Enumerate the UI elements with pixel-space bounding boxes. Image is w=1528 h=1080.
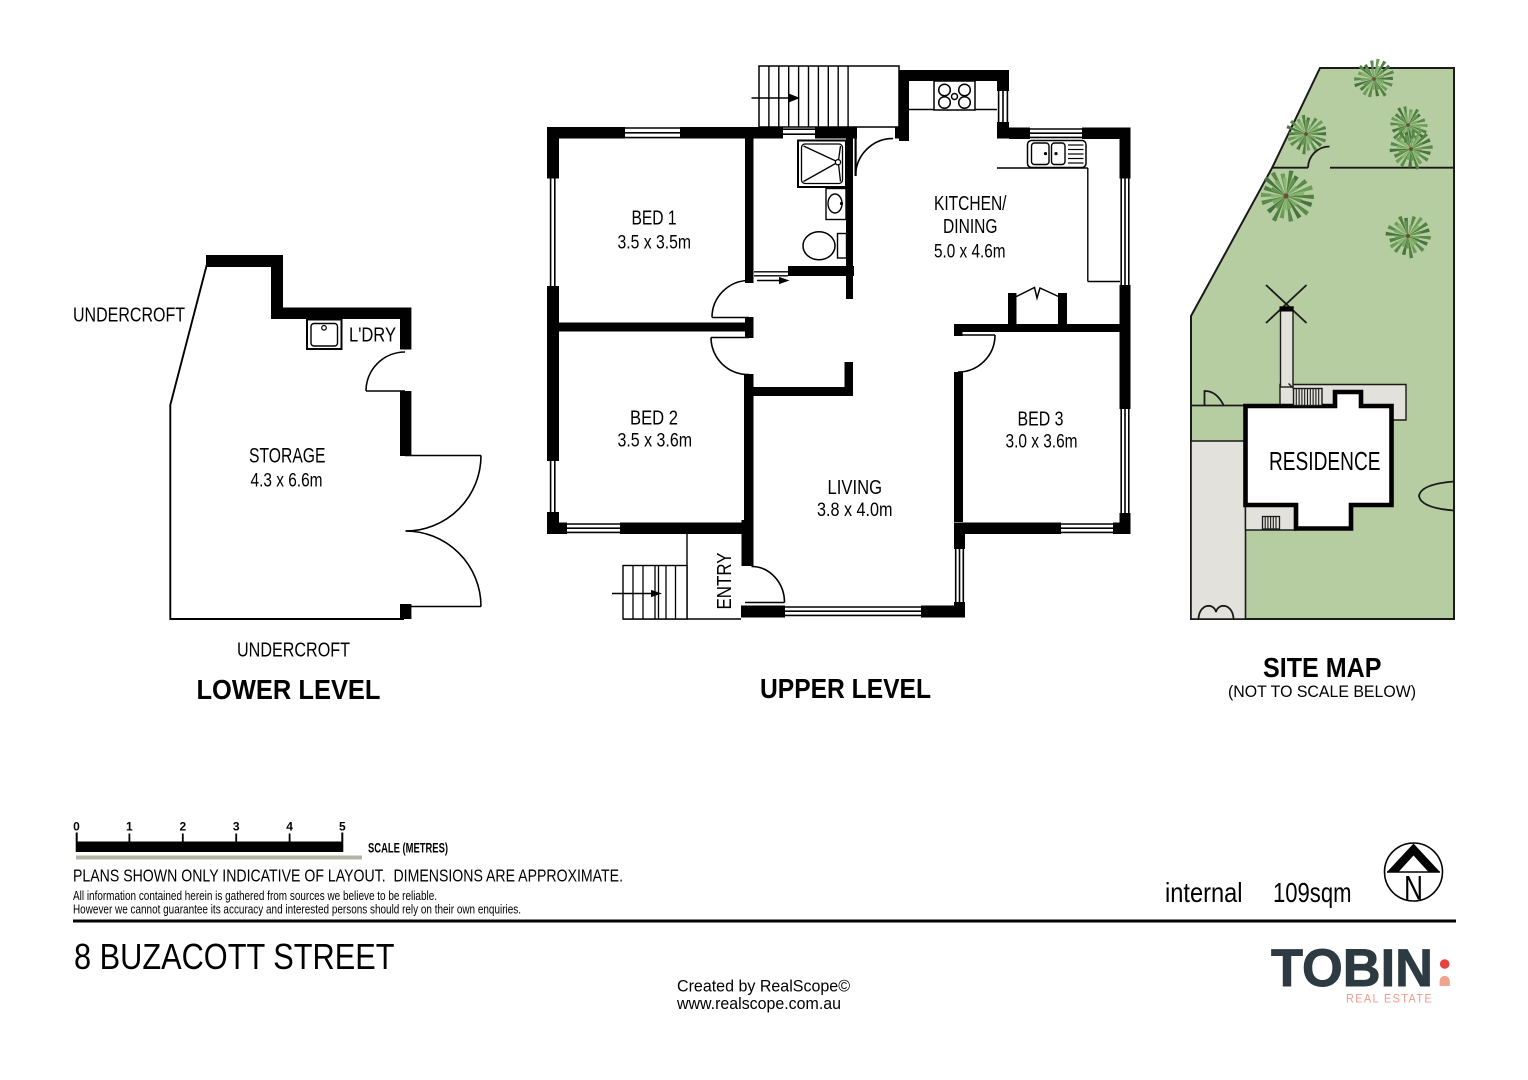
svg-text:www.realscope.com.au: www.realscope.com.au (676, 994, 841, 1013)
svg-text:4: 4 (286, 820, 293, 834)
svg-text:2: 2 (179, 820, 186, 834)
svg-text:5: 5 (339, 820, 346, 834)
svg-text:Created by RealScope©: Created by RealScope© (677, 977, 850, 996)
svg-text:L'DRY: L'DRY (349, 325, 396, 347)
svg-text:DINING: DINING (943, 216, 998, 238)
svg-text:UPPER LEVEL: UPPER LEVEL (760, 673, 931, 704)
svg-text:LIVING: LIVING (828, 477, 883, 499)
svg-text:internal: internal (1165, 877, 1243, 908)
svg-text:UNDERCROFT: UNDERCROFT (237, 640, 350, 662)
svg-text:109sqm: 109sqm (1273, 877, 1352, 908)
svg-text:3.5 x 3.5m: 3.5 x 3.5m (618, 232, 692, 254)
svg-text:REAL ESTATE: REAL ESTATE (1346, 992, 1433, 1006)
svg-text:3: 3 (233, 820, 240, 834)
svg-text:UNDERCROFT: UNDERCROFT (73, 305, 185, 327)
svg-text:3.5 x 3.6m: 3.5 x 3.6m (618, 430, 693, 452)
svg-text:KITCHEN/: KITCHEN/ (934, 193, 1007, 215)
svg-text:3.0 x 3.6m: 3.0 x 3.6m (1006, 431, 1078, 453)
svg-text:LOWER LEVEL: LOWER LEVEL (197, 674, 381, 705)
svg-text:PLANS SHOWN ONLY INDICATIVE OF: PLANS SHOWN ONLY INDICATIVE OF LAYOUT. D… (73, 866, 623, 886)
svg-text:N: N (1404, 870, 1423, 908)
svg-text:(NOT TO SCALE BELOW): (NOT TO SCALE BELOW) (1228, 683, 1416, 701)
svg-text:RESIDENCE: RESIDENCE (1269, 446, 1381, 476)
svg-text:1: 1 (126, 820, 133, 834)
svg-text:3.8 x 4.0m: 3.8 x 4.0m (817, 499, 893, 521)
svg-text:BED 2: BED 2 (630, 408, 678, 430)
svg-text:ENTRY: ENTRY (714, 553, 736, 610)
svg-text:4.3 x 6.6m: 4.3 x 6.6m (251, 470, 323, 492)
svg-text:SITE MAP: SITE MAP (1263, 652, 1382, 683)
svg-text:BED 3: BED 3 (1018, 409, 1064, 431)
svg-text:BED 1: BED 1 (632, 208, 677, 230)
svg-text:STORAGE: STORAGE (249, 445, 326, 468)
svg-text:5.0 x 4.6m: 5.0 x 4.6m (934, 241, 1006, 263)
svg-text:However we cannot guarantee it: However we cannot guarantee its accuracy… (73, 902, 521, 917)
svg-text:0: 0 (73, 820, 80, 834)
svg-text:SCALE (METRES): SCALE (METRES) (368, 840, 448, 856)
svg-text:8 BUZACOTT STREET: 8 BUZACOTT STREET (74, 936, 395, 977)
svg-text:TOBIN: TOBIN (1271, 939, 1433, 998)
